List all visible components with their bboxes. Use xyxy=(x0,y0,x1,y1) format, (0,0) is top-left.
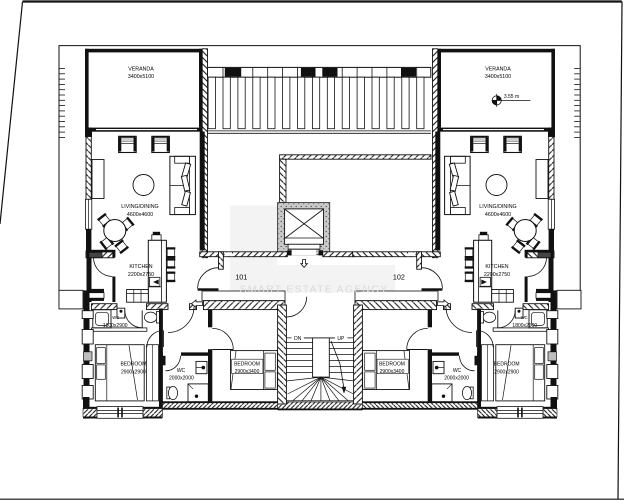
svg-text:VERANDA: VERANDA xyxy=(128,67,154,73)
svg-text:DN: DN xyxy=(294,336,302,342)
svg-text:2900x3400: 2900x3400 xyxy=(380,369,405,375)
svg-text:101: 101 xyxy=(235,272,247,281)
svg-text:1800x2900: 1800x2900 xyxy=(103,323,128,329)
svg-text:2900x2900: 2900x2900 xyxy=(121,369,146,375)
svg-text:WC: WC xyxy=(453,368,462,374)
svg-text:BEDROOM: BEDROOM xyxy=(234,361,260,367)
svg-text:WC: WC xyxy=(112,315,119,320)
svg-text:KITCHEN: KITCHEN xyxy=(485,264,508,270)
svg-text:1800x2900: 1800x2900 xyxy=(512,323,537,329)
svg-text:WC: WC xyxy=(521,315,528,320)
svg-text:VERANDA: VERANDA xyxy=(485,67,511,73)
svg-text:WC: WC xyxy=(177,368,186,374)
svg-text:2900x3400: 2900x3400 xyxy=(235,369,260,375)
svg-text:SMART ESTATE AGENCY: SMART ESTATE AGENCY xyxy=(240,285,389,296)
svg-text:2200x2750: 2200x2750 xyxy=(128,272,154,278)
svg-text:BEDROOM: BEDROOM xyxy=(120,361,146,367)
svg-text:LIVING/DINING: LIVING/DINING xyxy=(479,204,516,210)
svg-text:2200x2750: 2200x2750 xyxy=(484,272,510,278)
svg-text:2000x2000: 2000x2000 xyxy=(444,375,469,381)
svg-text:2000x2000: 2000x2000 xyxy=(169,375,194,381)
svg-text:3400x5100: 3400x5100 xyxy=(128,74,154,80)
svg-text:BEDROOM: BEDROOM xyxy=(494,361,520,367)
svg-text:BEDROOM: BEDROOM xyxy=(379,361,405,367)
svg-text:LIVING/DINING: LIVING/DINING xyxy=(121,204,158,210)
svg-text:KITCHEN: KITCHEN xyxy=(129,264,152,270)
svg-text:UP: UP xyxy=(337,336,345,342)
svg-text:102: 102 xyxy=(393,272,405,281)
svg-text:3400x5100: 3400x5100 xyxy=(485,74,511,80)
svg-text:3.55 m: 3.55 m xyxy=(504,94,519,100)
svg-text:4600x4600: 4600x4600 xyxy=(485,212,511,218)
svg-text:4600x4600: 4600x4600 xyxy=(127,212,153,218)
svg-text:2900x2900: 2900x2900 xyxy=(494,369,519,375)
